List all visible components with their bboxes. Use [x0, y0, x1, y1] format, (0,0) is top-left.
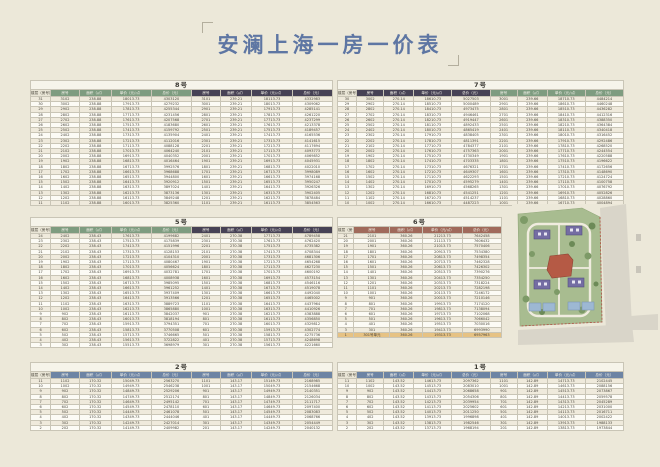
tree-icon	[594, 282, 599, 287]
column-header: 房号	[490, 372, 517, 379]
table-title-row: 6号	[338, 218, 502, 227]
table-cell: 3854563	[292, 201, 332, 206]
table-cell: 270.38	[220, 343, 252, 348]
price-table-building-7-wrapper: 7号楼层（房号）房号面积（㎡）单价（元/㎡）总价（元）房号面积（㎡）单价（元/㎡…	[337, 80, 624, 206]
road-east-branch	[630, 314, 658, 330]
tree-icon	[523, 296, 530, 303]
column-header: 楼层（房号）	[338, 372, 357, 379]
table-cell: 16013.73	[111, 201, 151, 206]
corner-bracket-top-left-icon	[202, 22, 213, 33]
column-header: 总价（元）	[585, 90, 623, 97]
column-header: 楼层（房号）	[31, 372, 51, 379]
building-1-footprint	[529, 303, 541, 311]
table-cell: 15513.73	[111, 343, 151, 348]
price-table-building-1-wrapper: 1号楼层（房号）房号面积（㎡）单价（元/㎡）总价（元）房号面积（㎡）单价（元/㎡…	[337, 362, 624, 431]
unit-mark	[544, 283, 547, 286]
table-cell: 143.52	[384, 425, 414, 430]
table-header-row: 楼层（房号）房号面积（㎡）单价（元/㎡）总价（元）房号面积（㎡）单价（元/㎡）总…	[338, 90, 624, 97]
table-header-row: 楼层（房号）房号面积（㎡）单价（元/㎡）总价（元）房号面积（㎡）单价（元/㎡）总…	[31, 372, 333, 379]
column-header: 面积（㎡）	[79, 227, 111, 234]
column-header: 楼层（房号）	[31, 90, 51, 97]
table-cell: 3	[31, 343, 51, 348]
unit-mark	[538, 233, 541, 236]
table-cell: 202	[51, 425, 80, 430]
tree-icon	[569, 241, 575, 247]
column-header: 楼层（房号）	[338, 90, 357, 97]
table-cell: 6957963	[462, 332, 501, 337]
column-header: 房号	[192, 90, 221, 97]
table-title: 7号	[338, 81, 624, 90]
table-title-row: 7号	[338, 81, 624, 90]
table-cell: 16113.73	[252, 201, 292, 206]
table-title: 6号	[338, 218, 502, 227]
table-cell: 238.88	[79, 201, 111, 206]
column-header: 单价（元/㎡）	[423, 227, 462, 234]
building-7-footprint	[534, 230, 550, 239]
price-table-building-5: 5号楼层（房号）房号面积（㎡）单价（元/㎡）总价（元）房号面积（㎡）单价（元/㎡…	[30, 217, 333, 348]
table-cell: 1973844	[585, 425, 623, 430]
corner-bracket-bottom-right-icon	[448, 55, 459, 66]
table-header-row: 楼层（房号）房号面积（㎡）单价（元/㎡）总价（元）房号面积（㎡）单价（元/㎡）总…	[338, 372, 624, 379]
column-header: 房号	[192, 227, 221, 234]
tree-icon	[529, 251, 535, 257]
column-header: 楼层（房号）	[338, 227, 354, 234]
table-header-row: 楼层（房号）房号面积（㎡）单价（元/㎡）总价（元）房号面积（㎡）单价（元/㎡）总…	[31, 90, 333, 97]
column-header: 房号	[357, 372, 384, 379]
column-header: 单价（元/㎡）	[252, 90, 292, 97]
column-header: 单价（元/㎡）	[111, 227, 151, 234]
table-row: 2202143.5213713.731968194201142.8913813.…	[338, 425, 624, 430]
table-row: 2202170.3214149.732409982201143.1714249.…	[31, 425, 333, 430]
car-icon	[636, 266, 641, 273]
column-header: 总价（元）	[452, 90, 490, 97]
building-8-footprint	[566, 226, 582, 235]
table-cell: 4221660	[292, 343, 332, 348]
column-header: 单价（元/㎡）	[414, 90, 452, 97]
table-cell: 201	[490, 425, 517, 430]
tree-icon	[554, 289, 560, 295]
unit-mark	[576, 229, 579, 232]
column-header: 总价（元）	[292, 372, 332, 379]
table-cell: 143.17	[220, 425, 252, 430]
price-table-building-8-wrapper: 8号楼层（房号）房号面积（㎡）单价（元/㎡）总价（元）房号面积（㎡）单价（元/㎡…	[30, 80, 333, 206]
table-row: 111102238.8816013.7338253601101239.21161…	[31, 201, 333, 206]
table-cell: 239.21	[220, 201, 252, 206]
column-header: 房号	[51, 372, 80, 379]
column-header: 单价（元/㎡）	[547, 372, 585, 379]
table-cell: 13713.73	[414, 425, 452, 430]
column-header: 房号	[192, 372, 221, 379]
table-cell: 1	[338, 332, 354, 337]
column-header: 房号	[357, 90, 384, 97]
building-6-footprint	[568, 278, 584, 287]
table-cell: 360.26	[390, 332, 423, 337]
table-cell: 11	[31, 201, 51, 206]
column-header: 面积（㎡）	[79, 372, 111, 379]
table-title-row: 1号	[338, 363, 624, 372]
site-plan-map	[512, 204, 658, 356]
column-header: 面积（㎡）	[220, 227, 252, 234]
price-table-building-6-wrapper: 6号楼层（房号）房号面积（㎡）单价（元/㎡）总价（元）212101360.262…	[337, 217, 502, 338]
table-cell: 3698979	[151, 343, 191, 348]
column-header: 单价（元/㎡）	[111, 372, 151, 379]
table-title: 8号	[31, 81, 333, 90]
column-header: 面积（㎡）	[517, 90, 547, 97]
table-title: 1号	[338, 363, 624, 372]
tree-icon	[585, 253, 592, 260]
table-cell: 1968194	[452, 425, 490, 430]
column-header: 总价（元）	[452, 372, 490, 379]
clubhouse-building	[547, 254, 573, 278]
column-header: 面积（㎡）	[390, 227, 423, 234]
table-cell: 19313.73	[423, 332, 462, 337]
table-title: 5号	[31, 218, 333, 227]
tree-icon	[589, 223, 596, 230]
unit-mark	[578, 281, 581, 284]
unit-mark	[538, 283, 541, 286]
column-header: 总价（元）	[151, 227, 191, 234]
price-table-building-2: 2号楼层（房号）房号面积（㎡）单价（元/㎡）总价（元）房号面积（㎡）单价（元/㎡…	[30, 362, 333, 431]
column-header: 房号	[354, 227, 390, 234]
column-header: 单价（元/㎡）	[111, 90, 151, 97]
column-header: 总价（元）	[292, 227, 332, 234]
building-3-footprint	[568, 302, 580, 310]
table-cell: 142.89	[517, 425, 547, 430]
table-cell: 238.43	[79, 343, 111, 348]
table-cell: 170.32	[79, 425, 111, 430]
table-cell: 13813.73	[547, 425, 585, 430]
column-header: 房号	[51, 227, 80, 234]
table-cell: 2040132	[292, 425, 332, 430]
price-table-building-8: 8号楼层（房号）房号面积（㎡）单价（元/㎡）总价（元）房号面积（㎡）单价（元/㎡…	[30, 80, 333, 206]
table-cell: 16610.73	[414, 201, 452, 206]
car-icon	[636, 234, 641, 241]
price-table-building-1: 1号楼层（房号）房号面积（㎡）单价（元/㎡）总价（元）房号面积（㎡）单价（元/㎡…	[337, 362, 624, 431]
column-header: 面积（㎡）	[220, 372, 252, 379]
table-cell: 201	[192, 425, 221, 430]
table-title-row: 5号	[31, 218, 333, 227]
table-cell: 301号单元	[354, 332, 390, 337]
column-header: 单价（元/㎡）	[252, 372, 292, 379]
table-cell: 301	[192, 343, 221, 348]
building-2-footprint	[543, 303, 555, 311]
table-row: 3302238.4315513.733698979301270.3815613.…	[31, 343, 333, 348]
table-cell: 15613.73	[252, 343, 292, 348]
price-table-building-7: 7号楼层（房号）房号面积（㎡）单价（元/㎡）总价（元）房号面积（㎡）单价（元/㎡…	[337, 80, 624, 206]
table-cell: 4487223	[452, 201, 490, 206]
building-4-footprint	[582, 302, 594, 310]
price-sheet-page: 安澜上海一房一价表 8号楼层（房号）房号面积（㎡）单价（元/㎡）总价（元）房号面…	[0, 0, 660, 467]
table-cell: 3825360	[151, 201, 191, 206]
table-row: 1301号单元360.2619313.736957963	[338, 332, 502, 337]
price-table-building-6: 6号楼层（房号）房号面积（㎡）单价（元/㎡）总价（元）212101360.262…	[337, 217, 502, 338]
table-header-row: 楼层（房号）房号面积（㎡）单价（元/㎡）总价（元）	[338, 227, 502, 234]
table-title-row: 2号	[31, 363, 333, 372]
price-table-building-2-wrapper: 2号楼层（房号）房号面积（㎡）单价（元/㎡）总价（元）房号面积（㎡）单价（元/㎡…	[30, 362, 333, 431]
table-cell: 202	[357, 425, 384, 430]
table-cell: 14149.73	[111, 425, 151, 430]
column-header: 房号	[490, 90, 517, 97]
table-cell: 14249.73	[252, 425, 292, 430]
unit-mark	[570, 229, 573, 232]
column-header: 面积（㎡）	[220, 90, 252, 97]
table-cell: 1102	[51, 201, 80, 206]
column-header: 单价（元/㎡）	[414, 372, 452, 379]
column-header: 总价（元）	[151, 372, 191, 379]
building-5-footprint	[534, 280, 550, 289]
column-header: 单价（元/㎡）	[547, 90, 585, 97]
main-title-box: 安澜上海一房一价表	[202, 22, 459, 66]
unit-mark	[544, 233, 547, 236]
column-header: 面积（㎡）	[384, 372, 414, 379]
column-header: 面积（㎡）	[517, 372, 547, 379]
table-cell: 2409982	[151, 425, 191, 430]
table-title: 2号	[31, 363, 333, 372]
table-cell: 2	[31, 425, 51, 430]
price-table-building-5-wrapper: 5号楼层（房号）房号面积（㎡）单价（元/㎡）总价（元）房号面积（㎡）单价（元/㎡…	[30, 217, 333, 348]
column-header: 总价（元）	[585, 372, 623, 379]
table-title-row: 8号	[31, 81, 333, 90]
table-cell: 302	[51, 343, 80, 348]
table-cell: 1101	[192, 201, 221, 206]
column-header: 单价（元/㎡）	[252, 227, 292, 234]
main-title-wrap: 安澜上海一房一价表	[0, 22, 660, 66]
table-cell: 270.14	[384, 201, 414, 206]
table-cell: 2	[338, 425, 357, 430]
column-header: 总价（元）	[462, 227, 501, 234]
column-header: 房号	[51, 90, 80, 97]
unit-mark	[572, 281, 575, 284]
column-header: 楼层（房号）	[31, 227, 51, 234]
column-header: 总价（元）	[292, 90, 332, 97]
tree-icon	[520, 216, 528, 224]
column-header: 面积（㎡）	[79, 90, 111, 97]
page-title: 安澜上海一房一价表	[218, 29, 443, 59]
column-header: 总价（元）	[151, 90, 191, 97]
column-header: 面积（㎡）	[384, 90, 414, 97]
table-header-row: 楼层（房号）房号面积（㎡）单价（元/㎡）总价（元）房号面积（㎡）单价（元/㎡）总…	[31, 227, 333, 234]
table-cell: 10	[338, 201, 357, 206]
table-cell: 1002	[357, 201, 384, 206]
